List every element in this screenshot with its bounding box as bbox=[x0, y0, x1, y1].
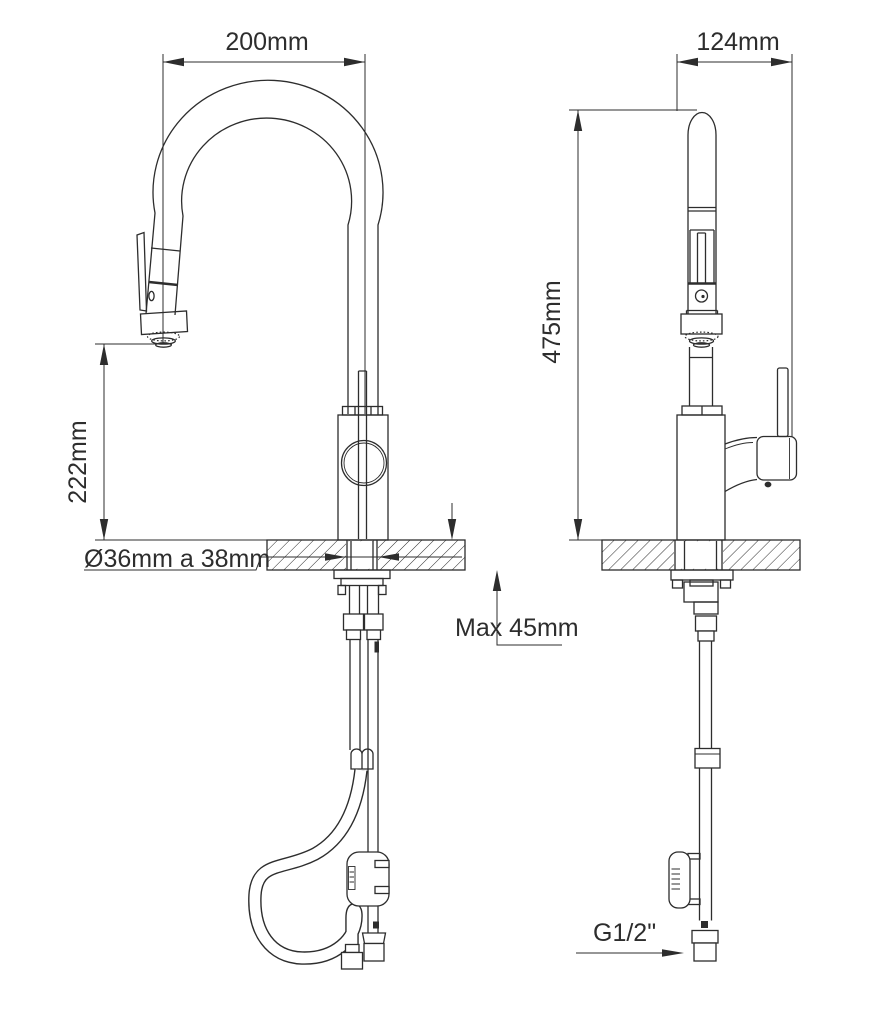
drawing-canvas: 200mm bbox=[0, 0, 894, 1024]
spray-head-cap bbox=[141, 311, 188, 335]
hole-diameter-callout: Ø36mm a 38mm bbox=[84, 545, 270, 573]
hose-end-fitting bbox=[364, 944, 384, 962]
dimension-body-depth: 124mm bbox=[677, 28, 792, 437]
handle-cone bbox=[725, 438, 757, 492]
max-thickness-callout: Max 45mm bbox=[448, 503, 579, 645]
spray-head-cap-side bbox=[681, 314, 722, 334]
set-screw bbox=[765, 482, 772, 488]
arrow-right-icon bbox=[771, 58, 792, 66]
hose-connector bbox=[351, 749, 373, 769]
arrow-left-icon bbox=[677, 58, 698, 66]
countertop-front bbox=[261, 540, 465, 570]
gooseneck-spout bbox=[146, 80, 383, 415]
hose-connector-side bbox=[695, 749, 720, 769]
arrow-up-icon bbox=[100, 344, 108, 365]
handle-base bbox=[757, 437, 797, 481]
dim-200mm-label: 200mm bbox=[225, 28, 308, 56]
dimension-overall-height: 475mm bbox=[538, 110, 697, 540]
spout-side bbox=[681, 113, 722, 407]
supply-hose-right bbox=[368, 640, 378, 853]
body-ring-detail bbox=[342, 441, 387, 486]
supply-hose-side bbox=[700, 641, 712, 921]
handle-lever bbox=[778, 368, 789, 437]
spray-lever bbox=[137, 233, 147, 312]
faucet-body-front bbox=[338, 371, 388, 540]
hose-end-fitting bbox=[342, 953, 363, 970]
arrow-up-icon bbox=[493, 570, 501, 591]
max-45mm-label: Max 45mm bbox=[455, 614, 579, 642]
connection-thread-callout: G1/2" bbox=[576, 919, 684, 957]
dim-124mm-label: 124mm bbox=[696, 28, 779, 56]
front-view: 200mm bbox=[64, 28, 579, 969]
dim-222mm-label: 222mm bbox=[64, 420, 92, 503]
faucet-technical-drawing: 200mm bbox=[0, 0, 894, 1024]
countertop-side bbox=[602, 540, 800, 570]
dimension-spout-reach: 200mm bbox=[163, 28, 365, 414]
supply-hose-left bbox=[350, 640, 360, 751]
undersink-front bbox=[255, 570, 390, 969]
dimension-spout-height: 222mm bbox=[64, 344, 267, 540]
side-view: 124mm 475mm bbox=[538, 28, 800, 961]
hose-end-fitting-side bbox=[694, 943, 716, 961]
hose-weight-side bbox=[669, 852, 690, 908]
hole-diameter-label: Ø36mm a 38mm bbox=[84, 545, 270, 573]
arrow-right-icon bbox=[662, 949, 684, 957]
arrow-up-icon bbox=[574, 110, 582, 131]
g12-label: G1/2" bbox=[593, 919, 656, 947]
undersink-side bbox=[669, 570, 733, 961]
dim-475mm-label: 475mm bbox=[538, 280, 566, 363]
arrow-down-icon bbox=[574, 519, 582, 540]
arrow-down-icon bbox=[448, 519, 456, 540]
arrow-right-icon bbox=[344, 58, 365, 66]
arrow-down-icon bbox=[100, 519, 108, 540]
arrow-left-icon bbox=[163, 58, 184, 66]
faucet-body-side bbox=[677, 368, 797, 540]
